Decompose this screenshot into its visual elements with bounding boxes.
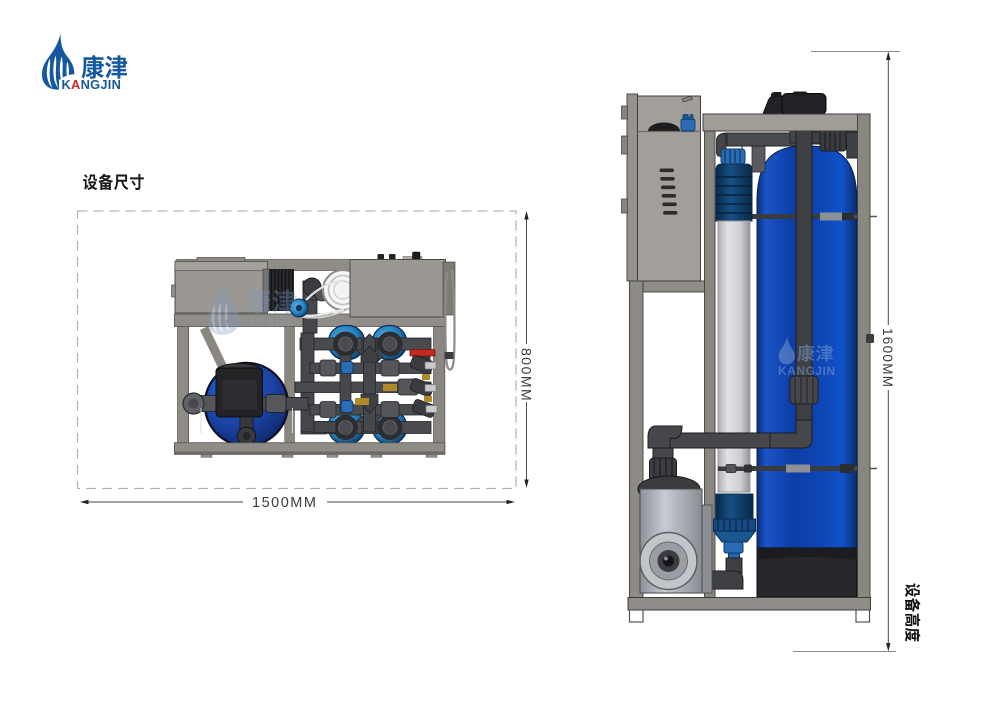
svg-text:KANGJIN: KANGJIN [778,364,836,378]
svg-text:KANGJIN: KANGJIN [222,315,291,330]
svg-text:KANGJIN: KANGJIN [62,77,122,92]
svg-text:800MM: 800MM [519,348,535,402]
svg-text:1600MM: 1600MM [880,328,895,388]
svg-text:1500MM: 1500MM [252,495,317,511]
